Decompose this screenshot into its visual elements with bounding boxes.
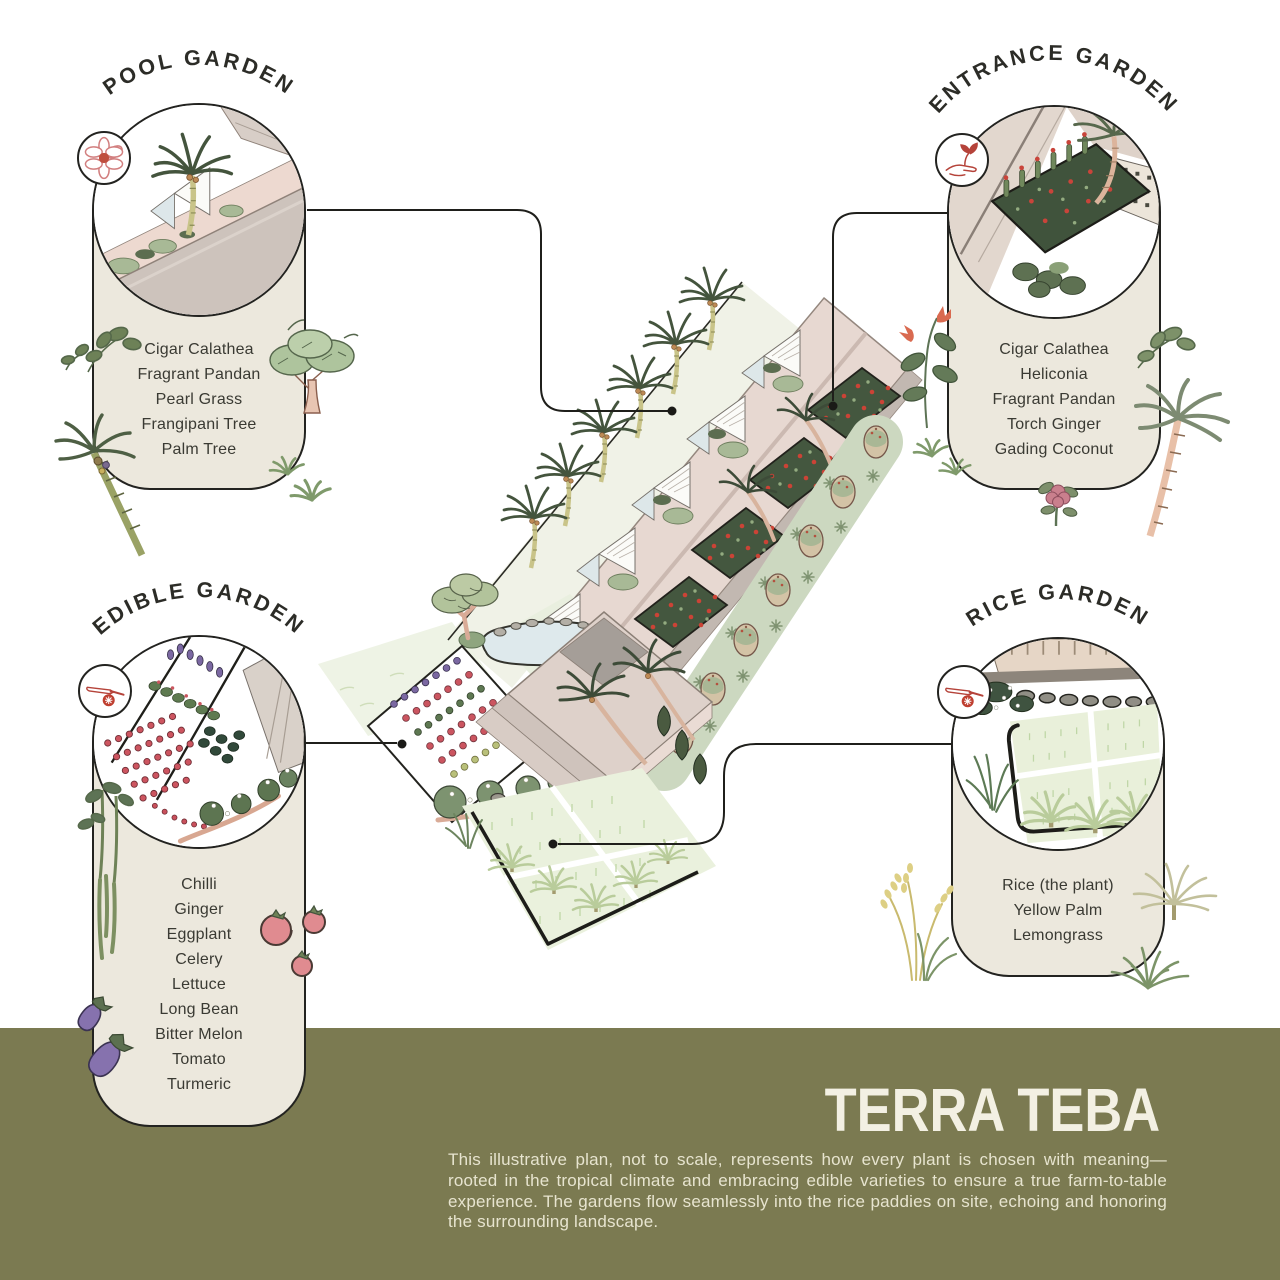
rice-garden-icon-circle xyxy=(937,665,991,719)
entrance-garden-title: ENTRANCE GARDEN xyxy=(876,58,1232,213)
plant-list-item: Turmeric xyxy=(100,1072,298,1097)
footer-title-bold: TEBA xyxy=(1017,1076,1160,1144)
flower-icon xyxy=(79,133,129,183)
terra-teba-poster: POOL GARDEN Cigar CalatheaFragrant Panda… xyxy=(0,0,1280,1280)
plant-list-item: Cigar Calathea xyxy=(955,337,1153,362)
pool-garden-icon-circle xyxy=(77,131,131,185)
plant-list-item: Gading Coconut xyxy=(955,437,1153,462)
plant-list-item: Palm Tree xyxy=(100,437,298,462)
plant-list-item: Lemongrass xyxy=(959,923,1157,948)
plant-list-item: Heliconia xyxy=(955,362,1153,387)
plant-list-item: Chilli xyxy=(100,872,298,897)
footer-title: TERRATEBA xyxy=(824,1080,1160,1141)
plant-list-item: Fragrant Pandan xyxy=(100,362,298,387)
plant-list-item: Ginger xyxy=(100,897,298,922)
entrance-garden-icon-circle xyxy=(935,133,989,187)
knife-tomato-icon xyxy=(80,666,130,716)
edible-garden-icon-circle xyxy=(78,664,132,718)
plant-list-item: Pearl Grass xyxy=(100,387,298,412)
plant-list-item: Yellow Palm xyxy=(959,898,1157,923)
footer-title-light: TERRA xyxy=(824,1076,1005,1144)
plant-list-item: Cigar Calathea xyxy=(100,337,298,362)
plant-list-item: Torch Ginger xyxy=(955,412,1153,437)
footer-description: This illustrative plan, not to scale, re… xyxy=(448,1150,1167,1233)
plant-list-item: Eggplant xyxy=(100,922,298,947)
plant-list-item: Bitter Melon xyxy=(100,1022,298,1047)
hand-seedling-icon xyxy=(937,135,987,185)
plant-list-item: Lettuce xyxy=(100,972,298,997)
plant-list-item: Tomato xyxy=(100,1047,298,1072)
plant-list-item: Fragrant Pandan xyxy=(955,387,1153,412)
plant-list-item: Long Bean xyxy=(100,997,298,1022)
plant-list-item: Rice (the plant) xyxy=(959,873,1157,898)
plant-list-item: Frangipani Tree xyxy=(100,412,298,437)
plant-list-item: Celery xyxy=(100,947,298,972)
knife-tomato-icon xyxy=(939,667,989,717)
